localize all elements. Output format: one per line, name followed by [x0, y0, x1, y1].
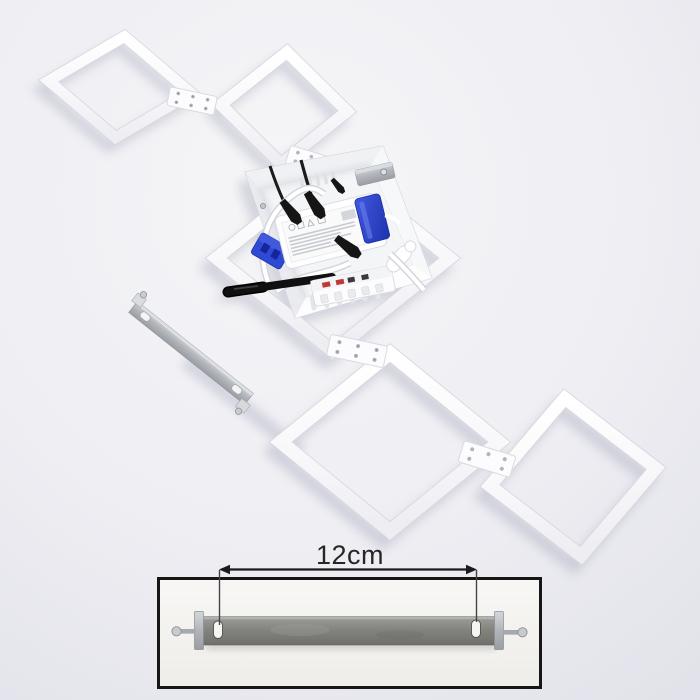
product-photo: 12cm	[0, 0, 700, 700]
inset-bracket-slot-right	[472, 620, 481, 638]
inset-panel	[159, 579, 541, 688]
inset-bracket	[172, 612, 527, 650]
inset-bracket-slot-left	[214, 621, 223, 639]
photo-canvas: 12cm	[0, 0, 700, 700]
inset-bracket-flange-right	[495, 612, 504, 650]
box-floor-screw	[260, 203, 265, 208]
dimension-label: 12cm	[316, 540, 384, 570]
